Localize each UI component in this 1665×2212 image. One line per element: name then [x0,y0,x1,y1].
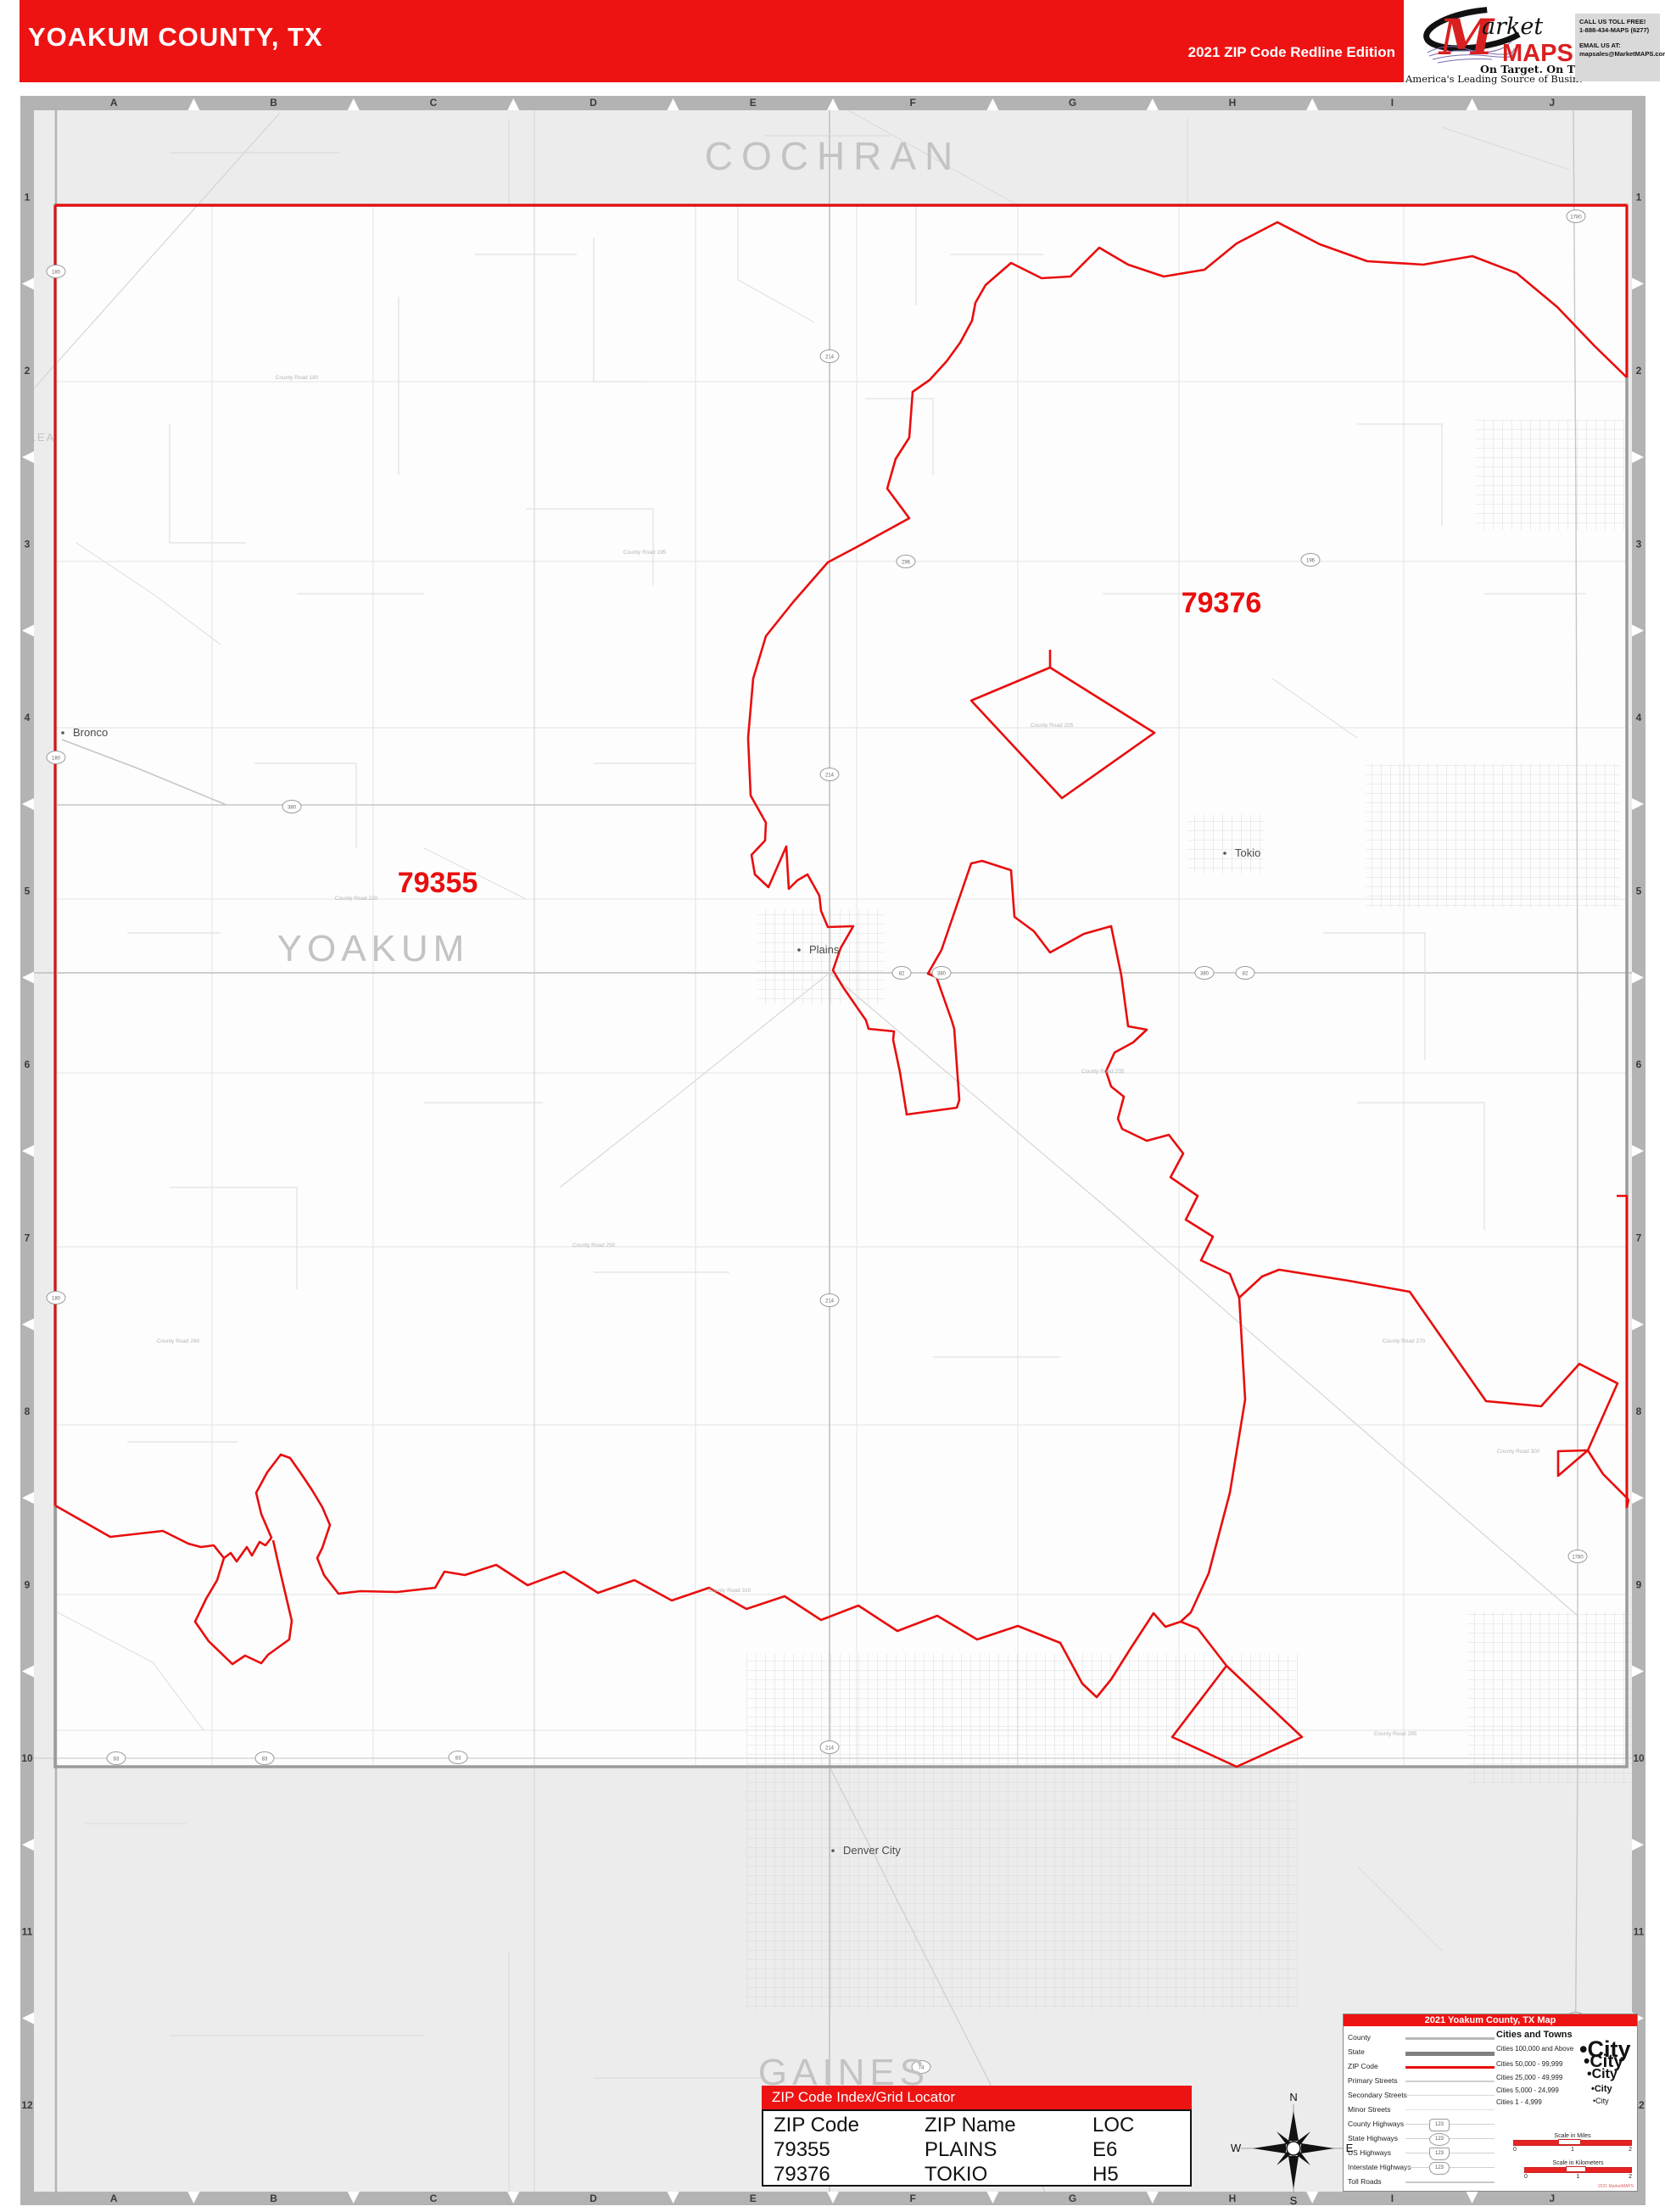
town-label: Plains [809,943,840,956]
road-name-label: County Road 235 [1081,1069,1125,1075]
loc-cell: H5 [1092,2162,1186,2187]
town-label: Tokio [1235,846,1260,859]
city-sample: •City [1591,2084,1612,2094]
highway-shield-number: 296 [902,561,911,566]
col-zip-code: ZIP Code [774,2113,925,2137]
page-title: YOAKUM COUNTY, TX [28,22,323,53]
grid-row-label: 3 [25,538,31,550]
town-dot-icon [831,1849,835,1852]
road-name-label: County Road 250 [573,1243,616,1248]
legend-title: 2021 Yoakum County, TX Map [1344,2014,1637,2026]
highway-shield-number: 1780 [1572,1556,1584,1561]
grid-col-label: G [1069,97,1076,109]
grid-row-label: 1 [25,191,31,203]
grid-row-label: 4 [25,712,31,723]
grid-col-label: C [430,97,438,109]
legend-row-zip: ZIP Code [1348,2062,1378,2072]
road-name-label: County Road 260 [157,1338,200,1344]
grid-row-label: 6 [1636,1059,1642,1070]
scale-miles-bar [1513,2140,1632,2146]
legend-sample-county-hwy: 123 [1405,2120,1495,2130]
logo-tagline2: America's Leading Source of Business Map… [1405,73,1582,85]
city-size-label: Cities 50,000 - 99,999 [1496,2060,1562,2068]
table-row: 79376 TOKIO H5 [774,2162,1190,2187]
scale-tick: 1 [1571,2147,1574,2153]
marketmaps-logo: M arket MAPS On Target. On Time. America… [1404,0,1665,85]
county-name-label: COCHRAN [705,134,962,178]
zip-index-title: ZIP Code Index/Grid Locator [762,2086,1192,2109]
grid-row-label: 6 [25,1059,31,1070]
legend-sample-state-hwy: 123 [1405,2134,1495,2144]
street-cluster [1366,763,1620,908]
road-name-label: County Road 205 [1031,723,1074,729]
legend-sample-secondary [1405,2091,1495,2101]
contact-line: CALL US TOLL FREE! [1579,18,1657,25]
scale-tick: 2 [1629,2147,1632,2153]
contact-line: mapsales@MarketMAPS.com [1579,50,1657,58]
interstate-shield-icon: 123 [1429,2162,1450,2175]
loc-cell: E6 [1092,2137,1186,2162]
grid-col-label: A [110,97,118,109]
highway-shield-number: 180 [52,757,61,762]
city-size-label: Cities 1 - 4,999 [1496,2098,1542,2106]
grid-col-label: B [270,2192,277,2204]
county-map-canvas: 1801801802142142142148238038082380178017… [0,0,1665,2205]
street-cluster [1187,814,1264,874]
grid-col-label: G [1069,2192,1076,2204]
grid-col-label: I [1391,2192,1394,2204]
city-sample: •City [1593,2097,1609,2105]
town-label: Bronco [73,726,108,739]
edition-label: 2021 ZIP Code Redline Edition [1188,44,1395,61]
zip-index-grid: ZIP Code ZIP Name LOC 79355 PLAINS E6 79… [762,2109,1192,2187]
county-hwy-shield-icon: 123 [1429,2119,1450,2131]
highway-shield-number: 83 [262,1757,268,1762]
city-size-label: Cities 25,000 - 49,999 [1496,2074,1562,2081]
zip-index-table: ZIP Code Index/Grid Locator ZIP Code ZIP… [762,2086,1192,2190]
grid-col-label: B [270,97,277,109]
city-sample: •City [1587,2067,1618,2082]
logo-arket: arket [1482,14,1543,40]
grid-row-label: 5 [25,885,31,897]
grid-row-label: 2 [25,365,31,377]
grid-col-label: I [1391,97,1394,109]
highway-shield-number: 380 [288,806,297,811]
legend-row-county: County [1348,2033,1371,2043]
zip-code-label: 79376 [1182,587,1262,619]
grid-row-label: 1 [1636,191,1642,203]
scale-tick: 0 [1513,2147,1517,2153]
legend-credit: 2021 MarketMAPS [1598,2184,1634,2189]
scale-miles-title: Scale in Miles [1513,2133,1632,2139]
col-zip-name: ZIP Name [925,2113,1092,2137]
legend: 2021 Yoakum County, TX Map County State … [1343,2014,1638,2192]
street-cluster [746,1654,1298,2010]
highway-shield-number: 1780 [1570,215,1582,221]
highway-shield-number: 214 [825,1746,835,1751]
zip-cell: 79355 [774,2137,925,2162]
highway-shield-number: 83 [114,1757,120,1762]
grid-row-label: 7 [25,1232,31,1243]
grid-col-label: C [430,2192,438,2204]
scale-tick: 1 [1577,2174,1580,2180]
grid-row-label: 10 [1633,1752,1645,1764]
contact-box: CALL US TOLL FREE! 1-888-434-MAPS (6277)… [1575,14,1660,81]
street-cluster [757,909,885,1004]
grid-row-label: 9 [25,1578,31,1590]
legend-row-interstate: Interstate Highways [1348,2163,1411,2173]
zip-cell: 79376 [774,2162,925,2187]
highway-shield-number: 214 [825,355,835,360]
logo-art: M arket MAPS On Target. On Time. America… [1404,0,1582,85]
grid-col-label: H [1229,97,1237,109]
road-name-label: County Road 295 [1374,1731,1417,1737]
legend-sample-toll [1405,2177,1495,2187]
legend-sample-county [1405,2033,1495,2043]
contact-line: EMAIL US AT: [1579,42,1657,49]
scale-km-bar [1524,2167,1632,2173]
grid-col-label: E [750,2192,757,2204]
county-name-label: YOAKUM [277,928,470,969]
state-hwy-shield-icon: 123 [1429,2133,1450,2146]
grid-col-label: J [1549,2192,1555,2204]
grid-col-label: F [910,2192,916,2204]
road-name-label: County Road 300 [1497,1449,1540,1455]
legend-row-state: State [1348,2047,1365,2058]
town-label: Denver City [843,1844,901,1857]
legend-sample-state [1405,2047,1495,2058]
highway-shield-number: 380 [937,972,947,977]
road-name-label: County Road 180 [276,375,319,381]
us-hwy-shield-icon: 123 [1429,2148,1450,2160]
highway-shield-number: 196 [1306,559,1316,564]
scale-km-title: Scale in Kilometers [1524,2160,1632,2166]
highway-shield-number: 82 [1243,972,1249,977]
grid-row-label: 11 [22,1925,33,1937]
highway-shield-number: 214 [825,1299,835,1304]
grid-row-label: 5 [1636,885,1642,897]
grid-col-label: E [750,97,757,109]
highway-shield-number: 180 [52,271,61,276]
legend-sample-interstate: 123 [1405,2163,1495,2173]
scale-tick: 2 [1629,2174,1632,2180]
highway-shield-number: 214 [825,774,835,779]
compass-rose-icon: N S E W [1230,2085,1357,2212]
grid-row-label: 8 [25,1405,31,1417]
grid-row-label: 3 [1636,538,1642,550]
compass-n: N [1289,2091,1297,2103]
road-name-label: County Road 195 [623,550,667,556]
town-dot-icon [797,948,801,952]
legend-sample-zip [1405,2062,1495,2072]
grid-row-label: 10 [21,1752,33,1764]
city-size-label: Cities 100,000 and Above [1496,2045,1573,2053]
grid-row-label: 7 [1636,1232,1642,1243]
cities-and-towns-header: Cities and Towns [1496,2030,1573,2040]
grid-row-label: 8 [1636,1405,1642,1417]
legend-sample-minor [1405,2105,1495,2115]
contact-line: 1-888-434-MAPS (6277) [1579,26,1657,34]
town-dot-icon [61,731,64,735]
name-cell: PLAINS [925,2137,1092,2162]
compass-w: W [1231,2142,1242,2154]
scale-miles: Scale in Miles 0 1 2 [1513,2133,1632,2153]
grid-row-label: 9 [1636,1578,1642,1590]
legend-sample-us-hwy: 123 [1405,2148,1495,2159]
highway-shield-number: 82 [899,972,905,977]
grid-col-label: F [910,97,916,109]
road-name-label: County Road 310 [708,1588,751,1594]
street-cluster [1476,420,1629,530]
road-name-label: County Road 220 [335,896,378,902]
grid-row-label: 11 [1634,1925,1645,1937]
col-loc: LOC [1092,2113,1186,2137]
road-name-label: County Road 270 [1383,1338,1426,1344]
table-row: 79355 PLAINS E6 [774,2137,1190,2162]
street-cluster [1467,1612,1633,1785]
highway-shield-number: 380 [1200,972,1210,977]
name-cell: TOKIO [925,2162,1092,2187]
scale-tick: 0 [1524,2174,1528,2180]
grid-col-label: J [1549,97,1555,109]
legend-sample-primary [1405,2076,1495,2086]
highway-shield-number: 83 [455,1757,461,1762]
compass-e: E [1346,2142,1354,2154]
highway-shield-number: 180 [52,1297,61,1302]
grid-col-label: A [110,2192,118,2204]
grid-row-label: 12 [21,2099,33,2111]
grid-col-label: D [589,97,597,109]
town-dot-icon [1223,852,1226,855]
grid-row-label: 4 [1636,712,1642,723]
grid-col-label: D [589,2192,597,2204]
city-size-label: Cities 5,000 - 24,999 [1496,2086,1559,2094]
zip-index-header-row: ZIP Code ZIP Name LOC [774,2113,1190,2137]
zip-code-label: 79355 [398,867,478,899]
scale-kilometers: Scale in Kilometers 0 1 2 [1524,2160,1632,2180]
grid-row-label: 2 [1636,365,1642,377]
